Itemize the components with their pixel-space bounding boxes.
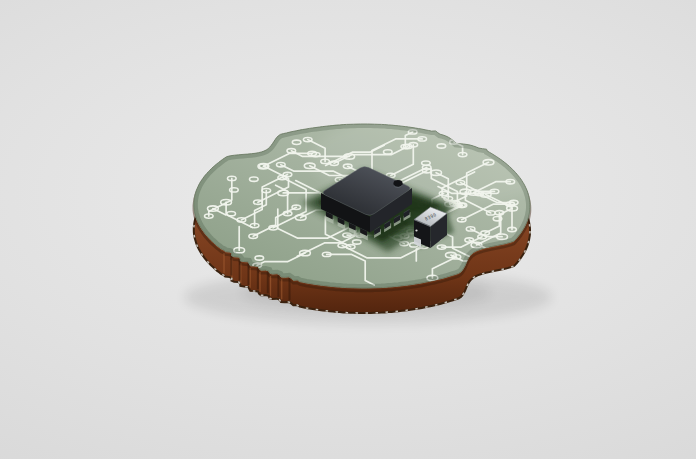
scene: 8390 [0,0,696,459]
component-glint [415,229,417,231]
pcb-3d-render: 8390 [0,0,696,459]
